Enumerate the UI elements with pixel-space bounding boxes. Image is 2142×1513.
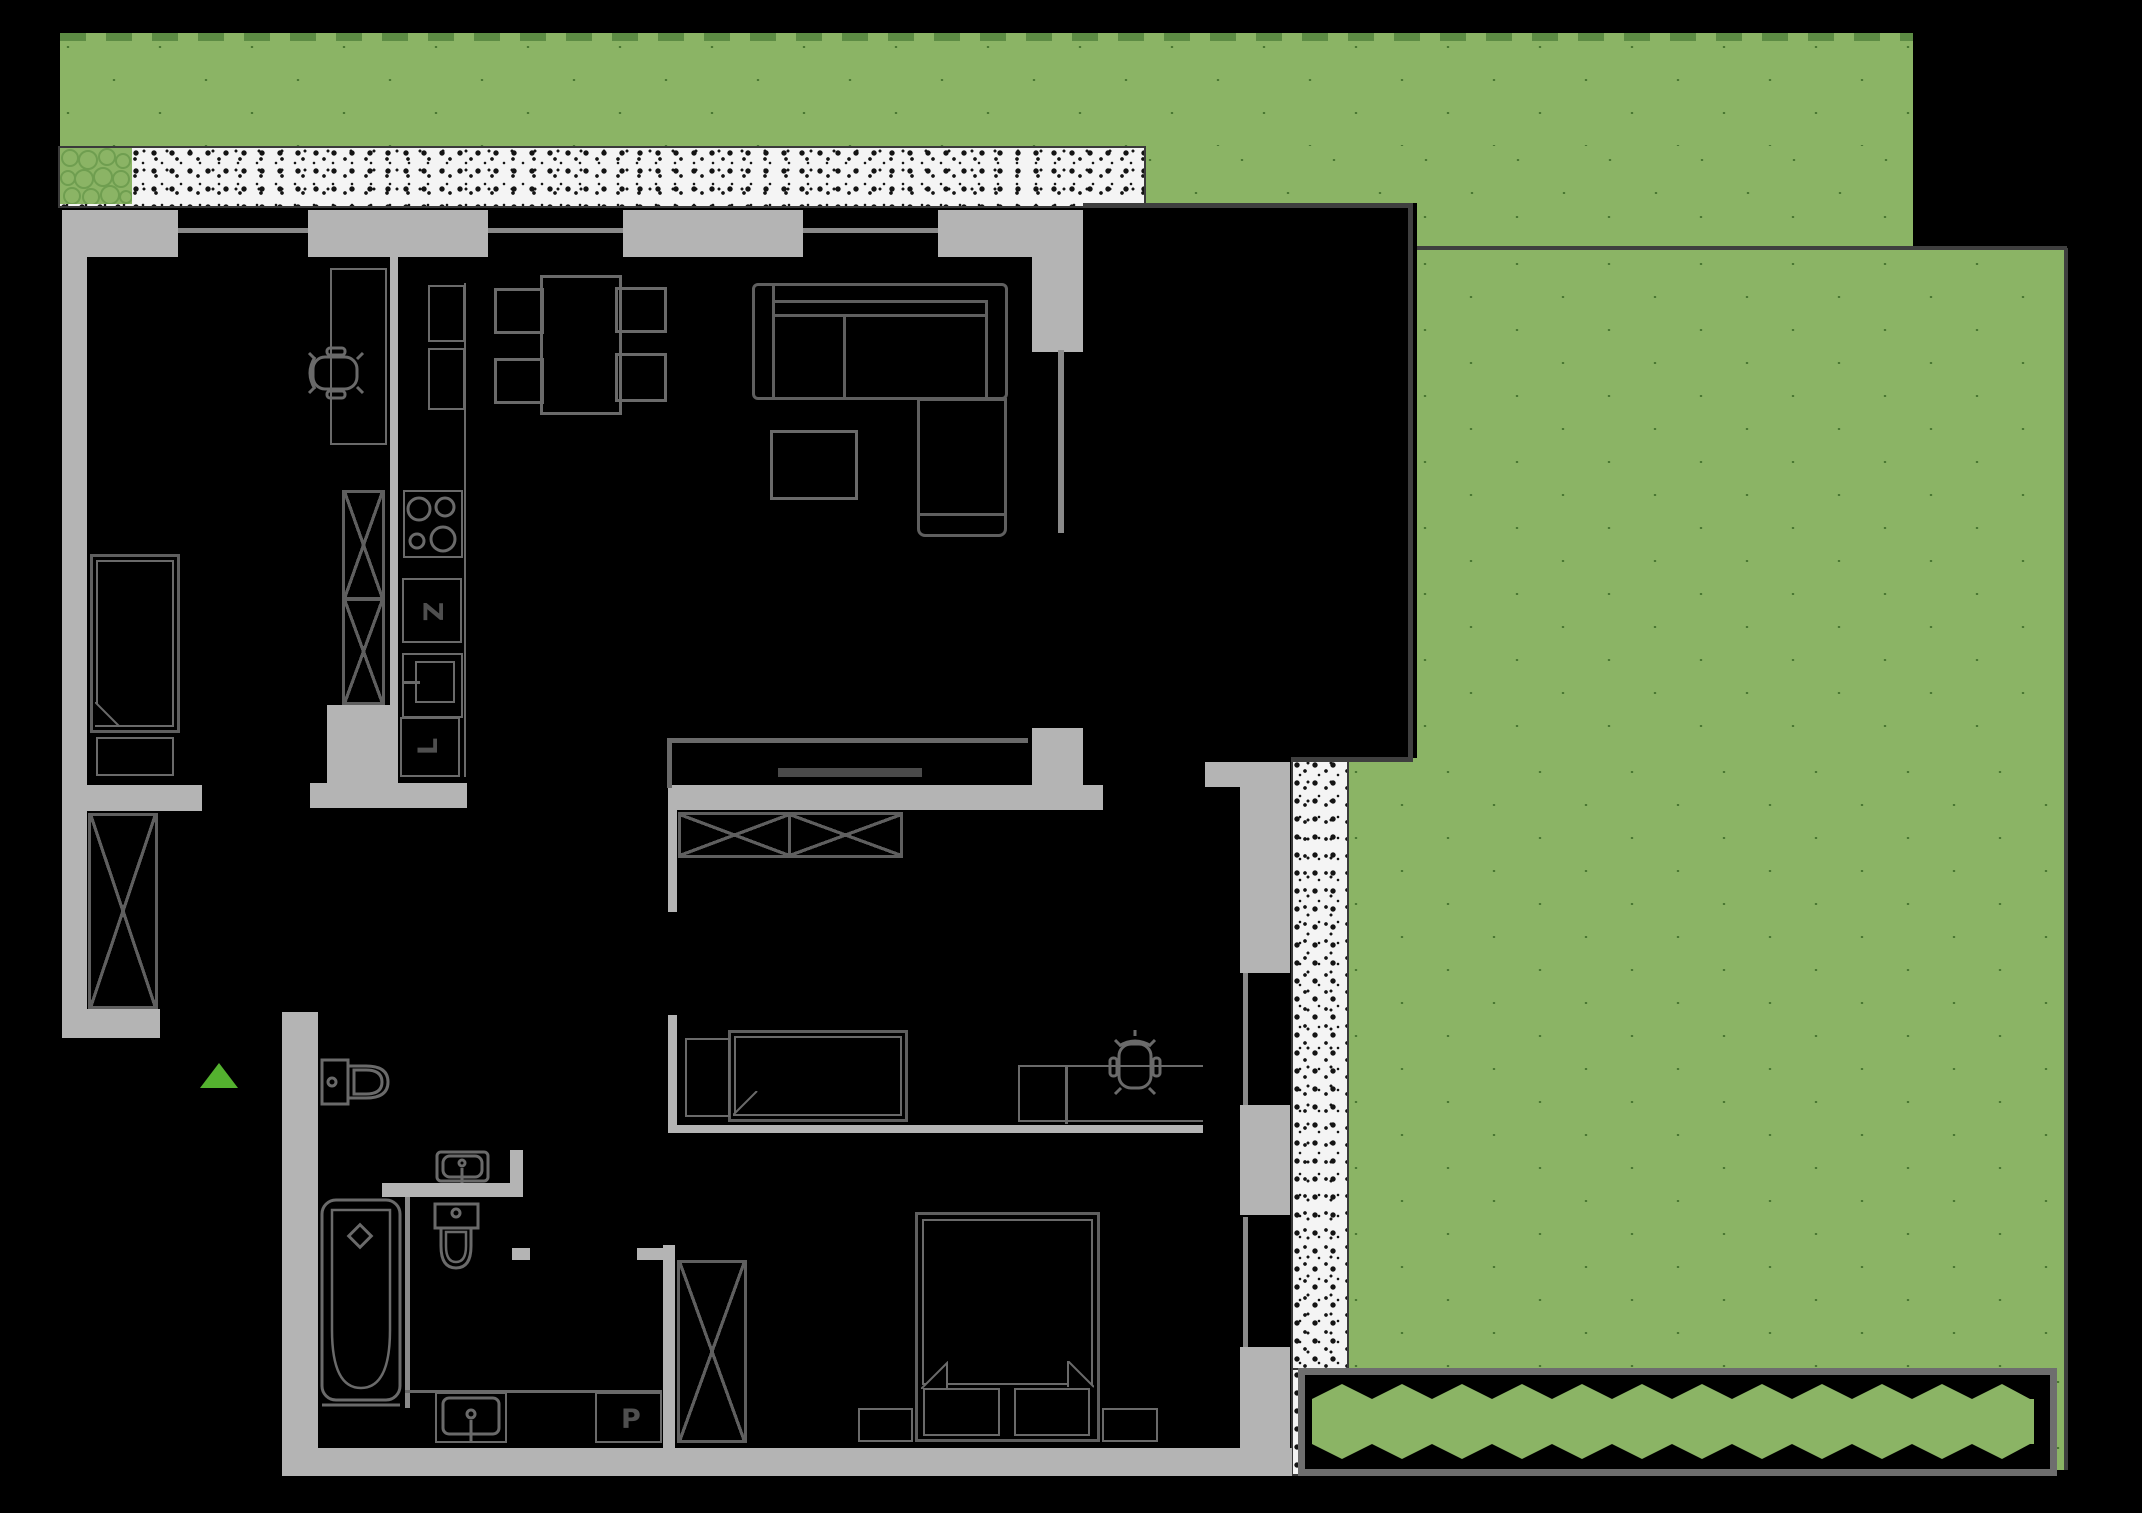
sliding-door-panel xyxy=(778,768,922,777)
window-sill-bedroom1 xyxy=(1243,1217,1248,1347)
wall-hall-corner xyxy=(62,1009,160,1038)
terrace-outline-top xyxy=(1083,203,1413,208)
bed-study xyxy=(90,554,180,733)
terrace-outline-bottom xyxy=(1291,757,1413,762)
wall-bath-door-stub-left xyxy=(512,1248,530,1260)
wardrobe-xbox-hall xyxy=(88,813,158,1009)
toilet-icon-bath xyxy=(433,1202,480,1280)
window-sill-1 xyxy=(178,228,308,233)
terrace-outline-right xyxy=(1408,203,1413,762)
wall-right-pier-2 xyxy=(1240,1105,1290,1215)
appliance-label-z: Z xyxy=(418,602,445,622)
lawn-right-lower xyxy=(1348,758,2067,1368)
appliance-label-p: P xyxy=(621,1406,641,1433)
wall-bath-door-stub-right xyxy=(637,1248,675,1260)
bed-study-pillow xyxy=(96,737,174,776)
lawn-top-edge-dashes xyxy=(60,33,1913,41)
kitchen-counter-edge xyxy=(464,283,466,777)
wall-corner-column xyxy=(1032,210,1083,352)
wall-left-exterior xyxy=(62,210,87,1009)
sofa xyxy=(752,283,1008,400)
bed-single-pillow xyxy=(685,1038,730,1117)
dining-chair-1 xyxy=(494,288,544,334)
appliance-label-l: L xyxy=(415,738,442,755)
terrace-hatch-right xyxy=(1291,758,1349,1374)
shrub-patch xyxy=(60,148,132,204)
wardrobe-xbox-study-top xyxy=(342,490,385,600)
kitchen-appliance-l: L xyxy=(400,717,460,777)
bathtub-icon xyxy=(320,1198,402,1410)
lawn-right-edge-line xyxy=(2064,248,2068,1470)
window-sill-3 xyxy=(803,228,938,233)
wall-wc-stub xyxy=(510,1150,523,1197)
dining-chair-3 xyxy=(615,287,667,333)
window-sill-bedroom2 xyxy=(1243,973,1248,1105)
wardrobe-xbox-study-bottom xyxy=(342,598,385,705)
wall-bedroom2-north xyxy=(668,785,1103,810)
washing-machine: P xyxy=(595,1392,662,1443)
office-chair-icon xyxy=(306,336,366,410)
nightstand-left xyxy=(858,1408,913,1442)
planter-box xyxy=(1298,1368,2057,1476)
wardrobe-xbox-bedroom1 xyxy=(677,1260,747,1443)
wall-bedroom-divider xyxy=(668,1125,1203,1133)
nightstand-right xyxy=(1102,1408,1158,1442)
wall-study-south xyxy=(62,785,202,811)
floor-plan: Z L xyxy=(0,0,2142,1513)
kitchen-upper-cabinet-1 xyxy=(428,285,465,342)
wall-kitchen-thin xyxy=(390,257,398,785)
wall-bottom-exterior xyxy=(282,1448,1292,1476)
sink-icon xyxy=(402,653,463,718)
entrance-triangle-icon xyxy=(200,1063,238,1088)
wall-top-pier-2 xyxy=(308,210,488,257)
toilet-icon-wc xyxy=(320,1058,398,1106)
office-chair-icon-2 xyxy=(1105,1030,1165,1104)
chaise xyxy=(917,398,1007,537)
glass-wall-terrace xyxy=(1058,350,1064,533)
coffee-table xyxy=(770,430,858,500)
wall-bedroom1-west xyxy=(663,1245,675,1450)
glass-wall-bedroom2 xyxy=(667,738,1028,743)
wall-right-pier-1 xyxy=(1240,762,1290,973)
terrace-hatch-top xyxy=(58,146,1146,208)
dining-chair-2 xyxy=(494,358,544,404)
washbasin-icon-bath xyxy=(435,1392,507,1443)
window-sill-2 xyxy=(488,228,623,233)
dining-chair-4 xyxy=(615,353,667,402)
wall-kitchen-block xyxy=(327,705,390,785)
dining-table xyxy=(540,275,622,415)
lawn-right-upper xyxy=(1142,146,1913,203)
wardrobe-xbox-bedroom2 xyxy=(678,812,903,858)
wall-hall-kitchen-band xyxy=(310,783,467,808)
kitchen-appliance-z: Z xyxy=(402,578,462,643)
wall-right-pier-3 xyxy=(1240,1347,1290,1448)
glass-wall-bedroom2-return xyxy=(667,738,672,788)
bed-single xyxy=(728,1030,908,1122)
lawn-step-edge-line xyxy=(1417,246,2067,250)
lawn-right-main xyxy=(1417,250,2067,758)
bed-double xyxy=(915,1212,1100,1442)
wall-bath-partition xyxy=(405,1197,410,1408)
lawn-right-step xyxy=(1417,203,1913,250)
kitchen-upper-cabinet-2 xyxy=(428,348,465,410)
wall-right-flange xyxy=(1205,762,1240,787)
washbasin-icon-wc xyxy=(435,1150,490,1183)
wall-bedroom2-west-b xyxy=(668,1015,677,1125)
wall-bath-top-band xyxy=(382,1183,510,1197)
hob-icon xyxy=(403,490,463,558)
wall-bath-west xyxy=(282,1012,318,1450)
wall-bedroom2-west-a xyxy=(668,810,677,912)
wall-corner-riser xyxy=(1032,728,1083,785)
lawn-top-strip xyxy=(60,33,1913,146)
wall-top-pier-3 xyxy=(623,210,803,257)
